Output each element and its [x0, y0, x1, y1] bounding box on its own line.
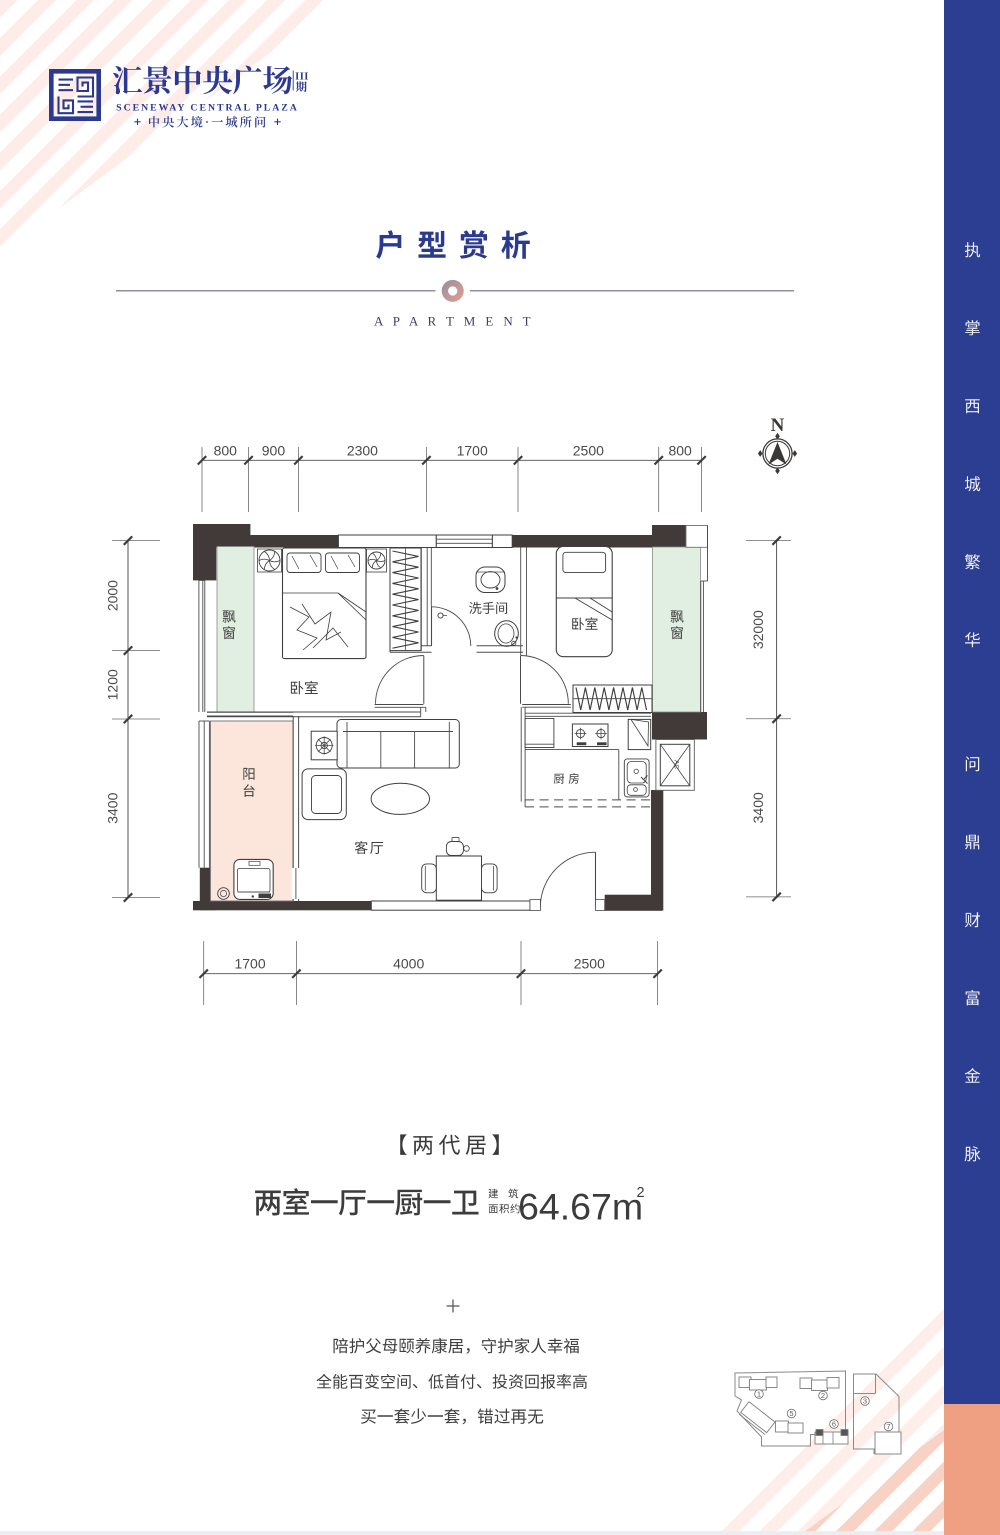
- svg-text:6: 6: [832, 1420, 836, 1429]
- svg-text:AC: AC: [673, 760, 680, 769]
- svg-text:2000: 2000: [105, 580, 121, 611]
- svg-text:2: 2: [637, 1185, 645, 1201]
- svg-text:3400: 3400: [750, 792, 766, 823]
- svg-text:5: 5: [789, 1409, 793, 1418]
- svg-text:800: 800: [668, 442, 692, 458]
- svg-text:1700: 1700: [457, 442, 488, 458]
- svg-text:1700: 1700: [234, 956, 265, 972]
- svg-text:SCENEWAY CENTRAL PLAZA: SCENEWAY CENTRAL PLAZA: [116, 103, 299, 114]
- svg-text:3400: 3400: [105, 792, 121, 823]
- svg-text:3: 3: [863, 1397, 867, 1406]
- svg-text:4000: 4000: [393, 956, 424, 972]
- svg-text:900: 900: [262, 442, 286, 458]
- svg-text:2: 2: [821, 1391, 825, 1400]
- svg-text:1: 1: [757, 1390, 761, 1399]
- svg-text:7: 7: [886, 1422, 890, 1431]
- svg-text:2500: 2500: [573, 442, 604, 458]
- svg-text:800: 800: [214, 442, 238, 458]
- svg-text:A P A R T M E N T: A P A R T M E N T: [374, 314, 534, 329]
- svg-text:32000: 32000: [750, 610, 766, 649]
- svg-text:N: N: [771, 415, 785, 436]
- svg-text:1200: 1200: [105, 669, 121, 700]
- svg-text:2300: 2300: [347, 442, 378, 458]
- svg-text:64.67m: 64.67m: [518, 1186, 643, 1228]
- svg-text:III: III: [295, 72, 309, 83]
- svg-text:2500: 2500: [574, 956, 605, 972]
